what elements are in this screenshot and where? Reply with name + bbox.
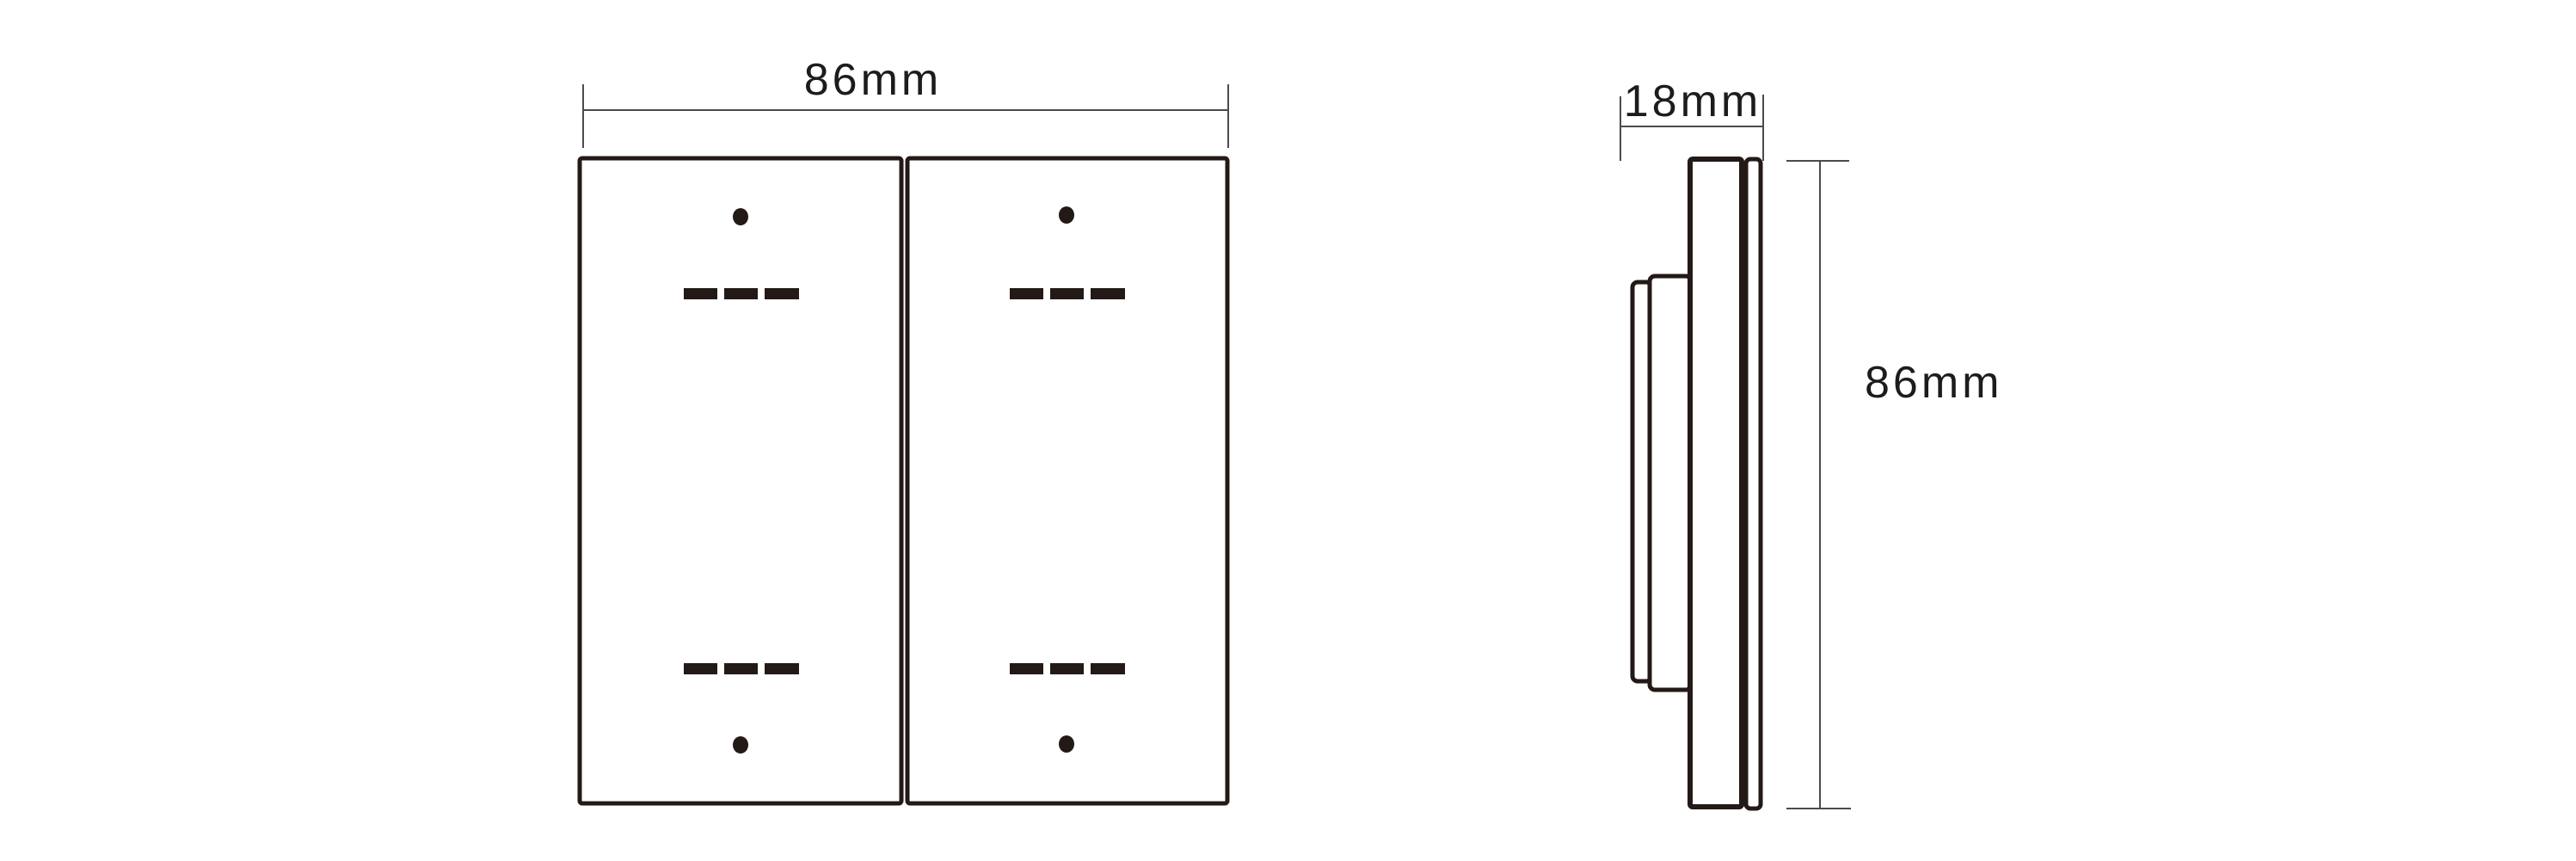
mounting-box-inner-step <box>1650 276 1691 690</box>
dot-indicator-icon <box>733 736 748 753</box>
faceplate-side-profile <box>1690 159 1742 807</box>
dash-icon <box>1091 663 1125 674</box>
side-height-dimension: 86mm <box>1786 161 2002 809</box>
dot-indicator-icon <box>1059 735 1074 753</box>
backplate-side-profile <box>1746 159 1761 809</box>
dash-icon <box>765 663 799 674</box>
dash-indicator-row <box>1010 288 1125 299</box>
front-view: 86mm <box>580 55 1228 803</box>
side-depth-label: 18mm <box>1624 77 1761 126</box>
dash-indicator-row <box>684 663 799 674</box>
rocker-right <box>907 158 1227 803</box>
drawing-svg: 86mm <box>0 0 2576 861</box>
dash-icon <box>684 288 717 299</box>
side-depth-dimension: 18mm <box>1620 77 1763 161</box>
rocker-right-plate <box>907 158 1227 803</box>
rocker-left-plate <box>580 158 901 803</box>
dot-indicator-icon <box>1059 206 1074 224</box>
side-height-label: 86mm <box>1865 358 2002 408</box>
rocker-left <box>580 158 901 803</box>
dash-indicator-row <box>1010 663 1125 674</box>
dash-icon <box>1050 663 1084 674</box>
dash-icon <box>1050 288 1084 299</box>
dash-icon <box>1091 288 1125 299</box>
side-view: 18mm 86mm <box>1620 77 2002 809</box>
technical-dimension-drawing: 86mm <box>0 0 2576 861</box>
front-width-label: 86mm <box>804 55 942 105</box>
dash-icon <box>724 288 758 299</box>
dash-icon <box>1010 288 1043 299</box>
mounting-box <box>1632 276 1691 690</box>
dot-indicator-icon <box>733 208 748 225</box>
dash-icon <box>724 663 758 674</box>
dash-icon <box>1010 663 1043 674</box>
front-width-dimension: 86mm <box>583 55 1228 148</box>
dash-icon <box>684 663 717 674</box>
dash-indicator-row <box>684 288 799 299</box>
dash-icon <box>765 288 799 299</box>
